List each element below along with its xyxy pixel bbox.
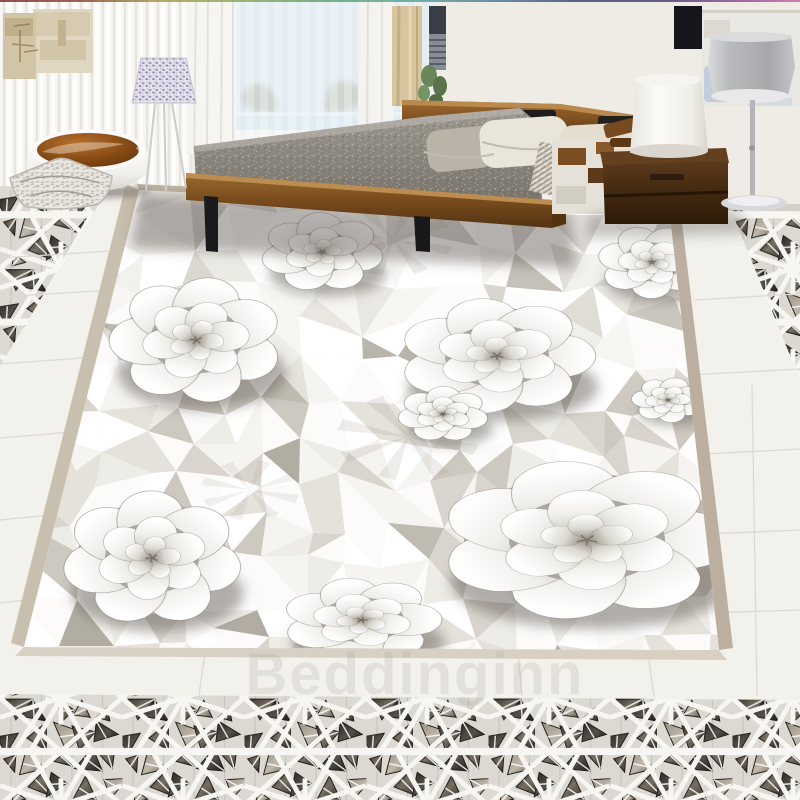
svg-text:Beddinginn: Beddinginn — [246, 642, 585, 707]
